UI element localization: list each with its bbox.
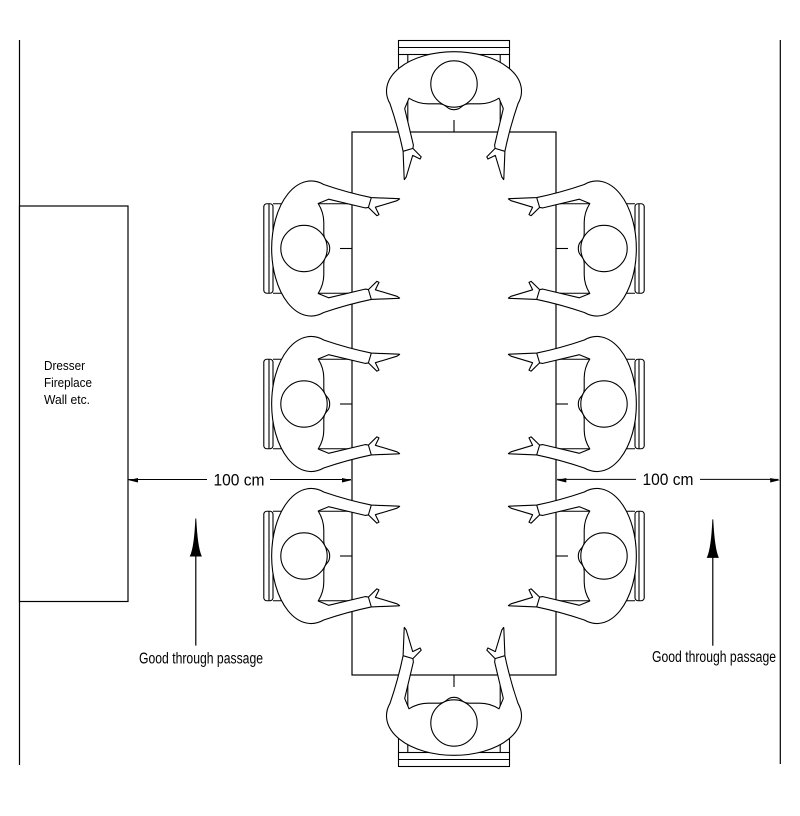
svg-text:Fireplace: Fireplace	[44, 375, 92, 390]
svg-text:Wall etc.: Wall etc.	[44, 392, 90, 407]
svg-text:Good through passage: Good through passage	[139, 651, 263, 668]
svg-text:Dresser: Dresser	[44, 358, 86, 373]
svg-text:100 cm: 100 cm	[214, 471, 265, 490]
svg-text:100 cm: 100 cm	[643, 470, 694, 489]
svg-text:Good through passage: Good through passage	[652, 649, 776, 666]
